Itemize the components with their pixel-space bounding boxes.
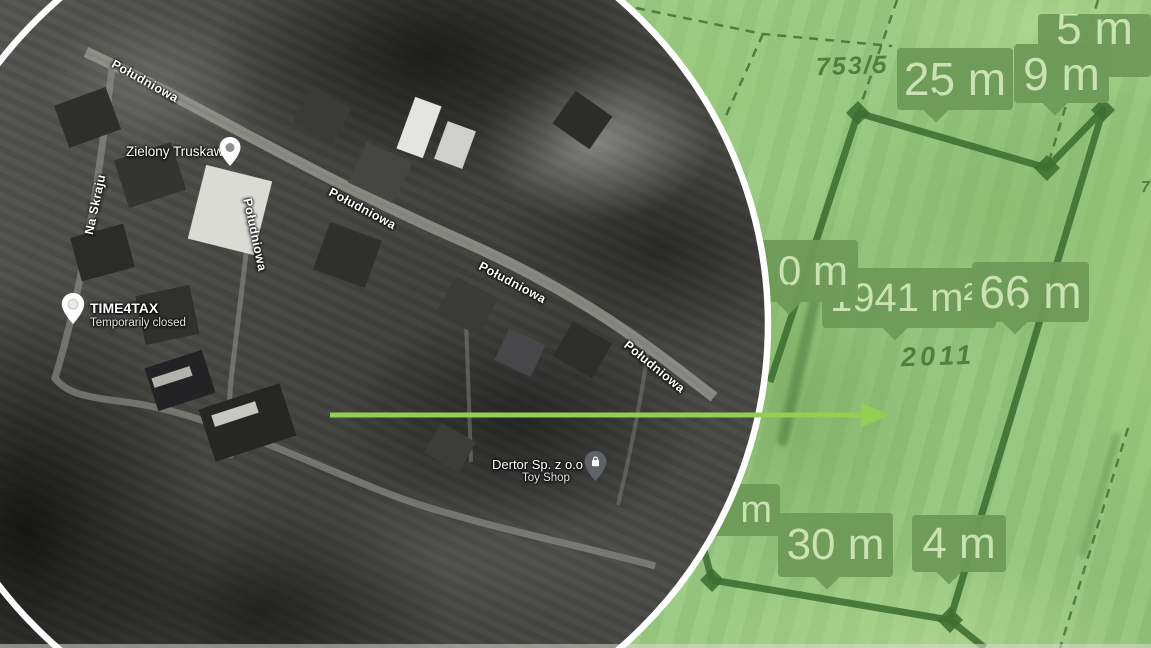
measurement-value: 66 m — [979, 269, 1081, 315]
poi-category: Toy Shop — [522, 472, 570, 484]
measurement-value: 4 m — [922, 522, 995, 566]
measurement-value: m — [740, 491, 772, 529]
poi-name[interactable]: TIME4TAX — [90, 300, 158, 316]
measurement-value: 25 m — [904, 56, 1006, 102]
place-pin-icon[interactable] — [61, 293, 85, 330]
parcel-boundary — [704, 110, 1103, 648]
measurement-value: 9 m — [1023, 51, 1100, 97]
parcel-number-partial: 7 — [1141, 179, 1151, 197]
map-comparison-view: 5 m 25 m 9 m 1941 m² 0 m 66 m 30 m 4 m — [0, 0, 1151, 648]
road — [86, 52, 714, 397]
measurement-value: 30 m — [787, 523, 885, 567]
measurement-bubble: 66 m — [972, 262, 1089, 322]
shop-pin-icon[interactable] — [584, 451, 607, 487]
poi-name[interactable]: Zielony Truskaw — [126, 144, 224, 159]
poi-status: Temporarily closed — [90, 317, 186, 329]
measurement-bubble: 25 m — [897, 48, 1013, 110]
road — [618, 352, 648, 505]
measurement-bubble: 9 m — [1014, 44, 1109, 103]
measurement-bubble: 30 m — [778, 513, 893, 577]
bottom-road-strip — [0, 644, 1151, 648]
measurement-bubble: 4 m — [912, 515, 1006, 572]
poi-name[interactable]: Dertor Sp. z o.o — [492, 457, 583, 472]
place-pin-icon[interactable] — [219, 137, 241, 172]
parcel-number: 2011 — [900, 340, 975, 374]
parcel-number: 753/5 — [816, 51, 890, 83]
